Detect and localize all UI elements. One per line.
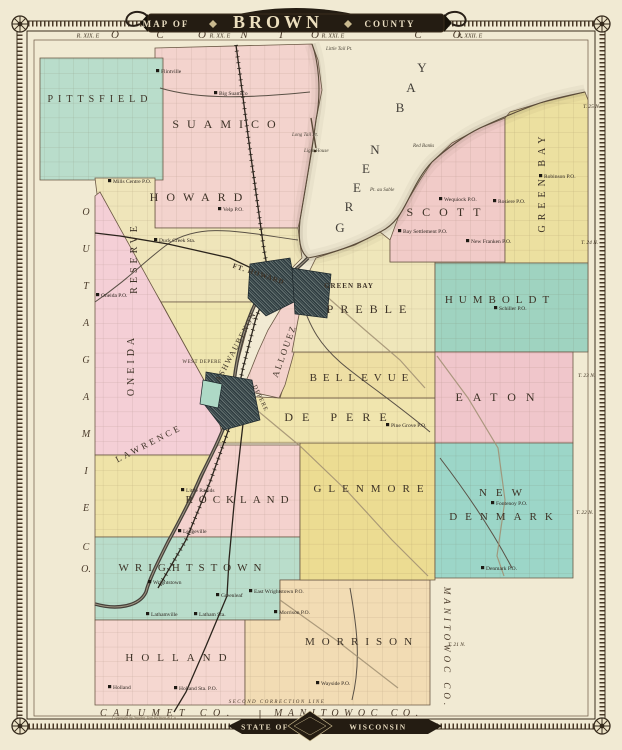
shore-label-pt-au-sable: Pt. au Sable (369, 188, 395, 193)
label-reserve: RESERVE (129, 222, 140, 294)
west-depere-block (200, 380, 222, 408)
settlement-little-rapids: Little Rapids (186, 488, 215, 494)
settlement-marker-icon (386, 423, 389, 426)
edge-left-letter: A (82, 318, 90, 329)
label-preble: PREBLE (327, 302, 414, 316)
settlement-marker-icon (156, 69, 159, 72)
settlement-marker-icon (491, 501, 494, 504)
settlement-marker-icon (194, 612, 197, 615)
settlement-bay-settlement-p-o-: Bay Settlement P.O. (403, 229, 448, 235)
settlement-marker-icon (274, 610, 277, 613)
settlement-marker-icon (154, 238, 157, 241)
brown-county-map: PITTSFIELDSUAMICOHOWARDSCOTTGREEN BAYHUM… (0, 0, 622, 750)
settlement-marker-icon (108, 685, 111, 688)
water-letter-E: E (362, 161, 370, 176)
settlement-greenleaf: Greenleaf (221, 592, 243, 599)
settlement-marker-icon (316, 681, 319, 684)
section-grid-pittsfield (40, 58, 163, 180)
corner-rosette-icon (594, 16, 610, 32)
tier-label: T. 21 N. (448, 642, 465, 648)
settlement-marker-icon (214, 91, 217, 94)
edge-left-letter: I (83, 466, 88, 477)
settlement-marker-icon (146, 612, 149, 615)
settlement-marker-icon (174, 686, 177, 689)
settlement-flintville: Flintville (161, 69, 182, 75)
settlement-wayside-p-o-: Wayside P.O. (321, 681, 351, 687)
label-green-bay: GREEN BAY (324, 282, 374, 290)
label-suamico: SUAMICO (172, 117, 283, 131)
settlement-east-wrightstown-p-o-: East Wrightstown P.O. (254, 589, 304, 595)
tier-label: T. 25 N. (583, 104, 600, 110)
settlement-marker-icon (216, 593, 219, 596)
shore-label-long-tail-pt-: Long Tail Pt. (291, 133, 318, 138)
shore-label-light-house: Light House (303, 149, 329, 154)
label-new: NEW (479, 487, 531, 499)
corner-rosette-icon (594, 718, 610, 734)
tier-label: T. 22 N. (576, 510, 593, 516)
settlement-robinson-p-o-: Robinson P.O. (544, 174, 576, 180)
label-eaton: EATON (455, 390, 544, 404)
settlement-lathamville: Lathamville (151, 612, 178, 618)
label-rockland: ROCKLAND (185, 494, 294, 506)
range-label: R. XX. E (209, 34, 231, 40)
label-oneida: ONEIDA (126, 334, 137, 396)
label-west-depere: WEST DEPERE (182, 360, 221, 365)
edge-bottom-county: MANITOWOC CO. (273, 708, 424, 719)
label-glenmore: GLENMORE (313, 483, 430, 495)
settlement-marker-icon (439, 197, 442, 200)
title-map-of: MAP OF (143, 19, 190, 29)
water-letter-E: E (353, 180, 361, 195)
settlement-morrison-p-o-: Morrison P.O. (279, 610, 311, 616)
label-bellevue: BELLEVUE (310, 372, 415, 384)
settlement-marker-icon (181, 488, 184, 491)
settlement-marker-icon (249, 589, 252, 592)
settlement-oneida-p-o-: Oneida P.O. (101, 293, 128, 299)
banner-wisconsin: WISCONSIN (349, 723, 406, 732)
edge-left-letter: O. (81, 564, 91, 575)
water-letter-R: R (345, 199, 354, 214)
label-holland: HOLLAND (125, 652, 234, 664)
correction-line-note: SECOND CORRECTION LINE (229, 700, 326, 705)
label-green-bay: GREEN BAY (537, 131, 548, 232)
settlement-marker-icon (218, 207, 221, 210)
title-county-name: BROWN (233, 12, 323, 32)
settlement-schiller-p-o-: Schiller P.O. (499, 306, 527, 312)
label-de-pere: DE PERE (284, 410, 395, 424)
label-denmark: DENMARK (449, 511, 561, 523)
edge-left-letter: C (83, 542, 90, 553)
water-letter-Y: Y (417, 60, 427, 75)
settlement-duck-creek-sta-: Duck Creek Sta. (159, 238, 196, 244)
shore-label-little-tail-pt-: Little Tail Pt. (325, 47, 352, 52)
edge-left-letter: A (82, 392, 90, 403)
edge-left-letter: E (82, 503, 89, 514)
settlement-fontenoy-p-o-: Fontenoy P.O. (496, 501, 528, 507)
title-county-word: COUNTY (364, 19, 415, 29)
settlement-rosiere-p-o-: Rosiere P.O. (498, 199, 526, 205)
section-grid-glenmore (300, 443, 435, 580)
map-sheet: PITTSFIELDSUAMICOHOWARDSCOTTGREEN BAYHUM… (0, 0, 622, 750)
settlement-marker-icon (178, 529, 181, 532)
settlement-marker-icon (398, 229, 401, 232)
tier-label: T. 23 N. (578, 373, 595, 379)
settlement-new-franken-p-o-: New Franken P.O. (471, 239, 512, 245)
settlement-wequiock-p-o-: Wequiock P.O. (444, 197, 477, 203)
label-wrightstown: WRIGHTSTOWN (119, 562, 268, 574)
settlement-holland: Holland (113, 685, 131, 691)
settlement-pine-grove-p-o-: Pine Grove P.O. (391, 423, 427, 429)
label-morrison: MORRISON (305, 636, 419, 648)
settlement-denmark-p-o-: Denmark P.O. (486, 566, 518, 572)
water-letter-N: N (370, 142, 380, 157)
settlement-marker-icon (481, 566, 484, 569)
settlement-holland-sta-p-o-: Holland Sta. P.O. (179, 686, 218, 692)
settlement-big-suamico: Big Suamico (219, 91, 248, 97)
tier-label: T. 24 N. (581, 239, 598, 246)
range-label: R. XIX. E (76, 34, 100, 40)
settlement-velp-p-o-: Velp P.O. (223, 207, 244, 213)
settlement-marker-icon (108, 179, 111, 182)
water-letter-B: B (396, 100, 405, 115)
settlement-marker-icon (466, 239, 469, 242)
edge-left-letter: G (82, 355, 89, 366)
green-bay-city-block (292, 268, 331, 318)
corner-rosette-icon (12, 16, 28, 32)
settlement-ledgeville: Ledgeville (183, 529, 207, 535)
edge-left-letter: O (82, 207, 89, 218)
banner-state-of: STATE OF (241, 723, 289, 732)
edge-left-letter: U (82, 244, 90, 255)
range-label: R. XXII. E (457, 34, 483, 40)
settlement-marker-icon (539, 174, 542, 177)
water-letter-A: A (406, 80, 416, 95)
settlement-latham-sta-: Latham Sta. (199, 612, 226, 618)
label-howard: HOWARD (150, 190, 251, 204)
settlement-marker-icon (148, 580, 151, 583)
settlement-marker-icon (96, 293, 99, 296)
edge-left-letter: M (81, 429, 91, 440)
label-scott: SCOTT (406, 205, 489, 219)
corner-rosette-icon (12, 718, 28, 734)
settlement-wrightstown: Wrightstown (153, 580, 182, 586)
water-letter-G: G (335, 220, 344, 235)
settlement-mills-centre-p-o-: Mills Centre P.O. (113, 179, 152, 185)
shore-label-red-banks: Red Banks (412, 144, 434, 149)
label-pittsfield: PITTSFIELD (48, 94, 153, 105)
label-humboldt: HUMBOLDT (445, 294, 555, 306)
settlement-marker-icon (493, 199, 496, 202)
edge-top-letter: O (111, 29, 119, 41)
range-label: R. XXI. E (321, 34, 345, 40)
settlement-marker-icon (494, 306, 497, 309)
